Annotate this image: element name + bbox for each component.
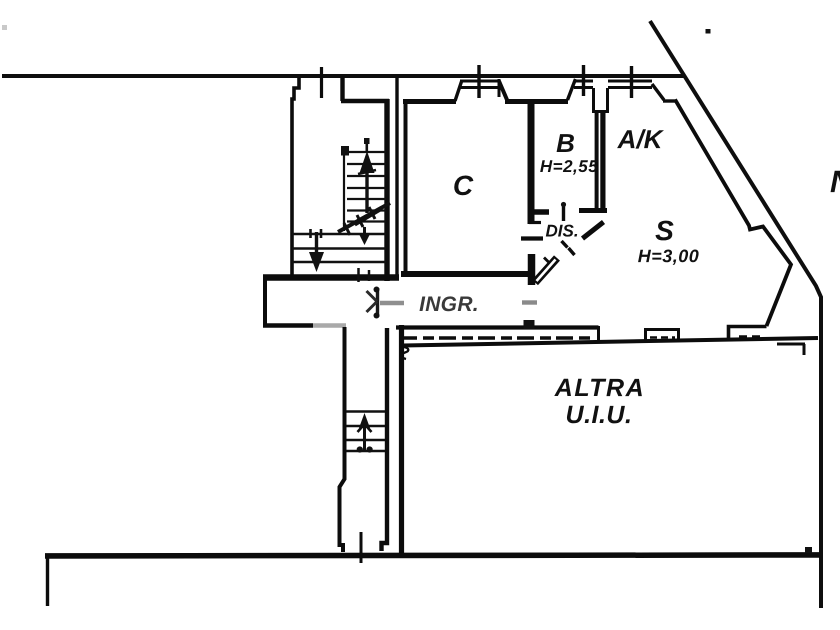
svg-text:H=3,00: H=3,00 bbox=[638, 246, 700, 266]
svg-text:A/K: A/K bbox=[617, 124, 665, 154]
svg-text:H=2,55: H=2,55 bbox=[540, 157, 598, 176]
svg-text:S: S bbox=[655, 215, 674, 246]
svg-text:B: B bbox=[556, 128, 575, 158]
svg-text:U.I.U.: U.I.U. bbox=[566, 401, 633, 429]
svg-text:ALTRA: ALTRA bbox=[554, 374, 645, 402]
svg-text:DIS.: DIS. bbox=[545, 222, 578, 241]
svg-text:N: N bbox=[830, 164, 840, 199]
svg-text:C: C bbox=[453, 170, 474, 201]
svg-text:INGR.: INGR. bbox=[419, 293, 479, 316]
